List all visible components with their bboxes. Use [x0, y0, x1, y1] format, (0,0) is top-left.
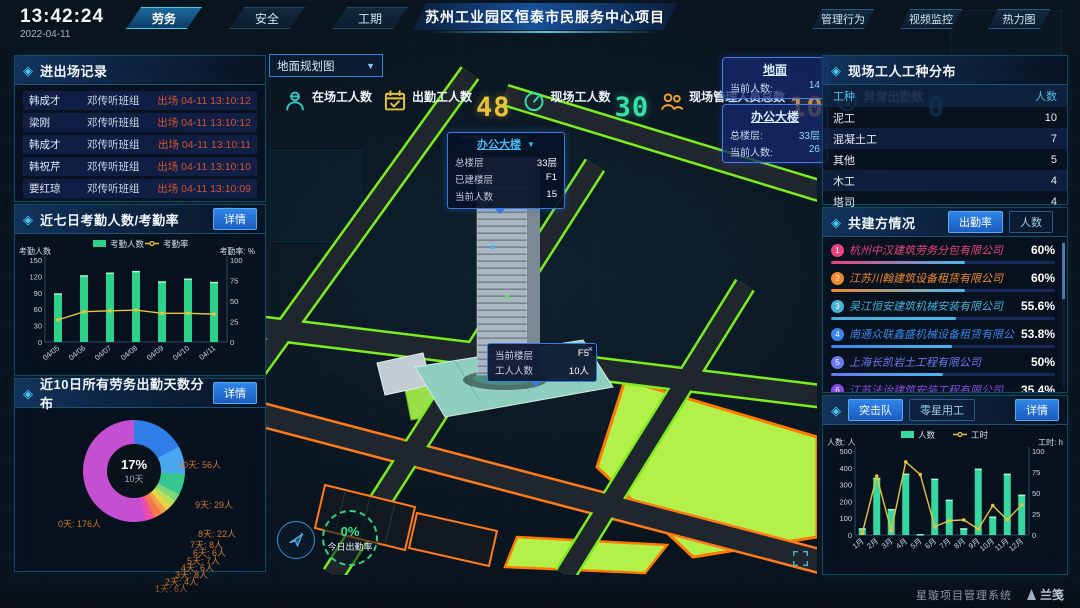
progress-track	[831, 261, 1055, 264]
info-row: 总楼层:33层	[730, 127, 820, 142]
partner-line: 6江苏法诒建筑安装工程有限公司35.4%	[831, 382, 1055, 392]
top-tab[interactable]: 热力图	[988, 9, 1050, 29]
top-tabs-left: 劳务安全工期	[126, 7, 408, 29]
tab-突击队[interactable]: 突击队	[848, 399, 903, 421]
svg-text:30: 30	[34, 322, 42, 331]
info-value: 15	[546, 189, 557, 203]
rank-badge: 2	[831, 272, 844, 285]
map-layer-value: 地面规划图	[277, 58, 335, 74]
svg-text:0: 0	[230, 338, 234, 347]
brand-name: 兰笺	[1040, 586, 1064, 603]
partner-value: 35.4%	[1021, 383, 1055, 392]
info-value: 14	[809, 80, 820, 95]
progress-fill	[831, 317, 956, 320]
trade-count: 4	[1011, 196, 1057, 208]
svg-text:7月: 7月	[938, 536, 953, 550]
partner-value: 60%	[1031, 271, 1055, 285]
progress-track	[831, 317, 1055, 320]
partner-value: 50%	[1031, 355, 1055, 369]
svg-text:6月: 6月	[923, 536, 938, 550]
stat-worker: 在场工人数	[282, 80, 372, 114]
info-row: 总楼层33层	[455, 155, 557, 169]
chevron-down-icon[interactable]: ▼	[527, 140, 535, 149]
worker-name: 梁刚	[29, 115, 87, 130]
stat-value: 30	[615, 94, 650, 121]
partner-item[interactable]: 2江苏川翰建筑设备租赁有限公司60%	[831, 270, 1055, 292]
attendance-chart-title: 近七日考勤人数/考勤率	[40, 210, 206, 229]
detail-button[interactable]: 详情	[213, 208, 257, 230]
floor-tooltip[interactable]: × 当前楼层F5工人人数10人	[487, 343, 597, 382]
svg-text:04/06: 04/06	[67, 343, 87, 362]
svg-text:75: 75	[1032, 468, 1040, 477]
detail-button[interactable]: 详情	[1015, 399, 1059, 421]
svg-text:120: 120	[29, 272, 42, 281]
squad-chart: 人数工时人数: 人工时: h01002003004005000255075100…	[823, 425, 1067, 571]
time-display: 13:42:24	[20, 6, 104, 28]
crew-name: 邓传听班组	[87, 93, 157, 108]
scrollbar-thumb[interactable]	[1062, 243, 1065, 299]
title-underline	[430, 31, 660, 33]
partner-line: 5上海长凯岩土工程有限公司50%	[831, 354, 1055, 370]
info-label: 总楼层:	[730, 127, 763, 142]
svg-text:考勤人数: 考勤人数	[19, 246, 51, 256]
chevron-down-icon: ▼	[366, 61, 375, 71]
crew-name: 邓传听班组	[87, 137, 158, 152]
title-banner: 苏州工业园区恒泰市民服务中心项目	[413, 3, 677, 30]
partner-name: 杭州中汉建筑劳务分包有限公司	[849, 242, 1026, 258]
top-tabs-right: 管理行为视频监控热力图	[812, 9, 1050, 29]
svg-text:1月: 1月	[851, 536, 866, 550]
worker-name: 韩成才	[29, 93, 87, 108]
donut-center: 17% 10天	[107, 444, 161, 498]
worker-name: 韩成才	[29, 137, 87, 152]
partner-line: 4南通众联鑫盛机械设备租赁有限公司53.8%	[831, 326, 1055, 342]
info-value: 10人	[569, 363, 589, 377]
attendance-chart-panel: ◈ 近七日考勤人数/考勤率 详情 考勤人数考勤率考勤人数考勤率: %030609…	[14, 204, 266, 376]
svg-text:04/09: 04/09	[145, 343, 165, 362]
table-row[interactable]: 韩成才邓传听班组出场 04-11 13:10:11	[23, 135, 257, 154]
svg-text:工时: 工时	[971, 430, 989, 440]
top-tab[interactable]: 劳务	[126, 7, 202, 29]
calendar-check-icon	[382, 88, 408, 114]
svg-text:500: 500	[839, 447, 852, 456]
top-tab[interactable]: 安全	[229, 7, 305, 29]
partners-list: 1杭州中汉建筑劳务分包有限公司60%2江苏川翰建筑设备租赁有限公司60%3吴江恒…	[823, 237, 1067, 392]
tab-零星用工[interactable]: 零星用工	[909, 399, 975, 421]
people-icon	[659, 88, 685, 114]
exit-time: 出场 04-11 13:10:11	[158, 137, 251, 152]
ground-box-rows: 当前人数:14	[730, 80, 820, 95]
donut-center-percent: 17%	[121, 457, 147, 472]
distribution-title: 近10日所有劳务出勤天数分布	[40, 374, 206, 412]
table-row[interactable]: 韩祝芹邓传听班组出场 04-11 13:10:10	[23, 157, 257, 176]
svg-text:25: 25	[230, 318, 238, 327]
tab-人数[interactable]: 人数	[1009, 211, 1053, 233]
partner-value: 53.8%	[1021, 327, 1055, 341]
svg-text:04/05: 04/05	[41, 343, 61, 362]
exit-time: 出场 04-11 13:10:10	[157, 159, 251, 174]
svg-text:04/08: 04/08	[119, 343, 139, 362]
donut-center-label: 10天	[124, 472, 143, 485]
svg-text:75: 75	[230, 277, 238, 286]
svg-text:25: 25	[1032, 510, 1040, 519]
table-row[interactable]: 其他5	[823, 149, 1067, 170]
partner-item[interactable]: 6江苏法诒建筑安装工程有限公司35.4%	[831, 382, 1055, 392]
stat-calendar-check: 出勤工人数48	[382, 80, 511, 121]
top-tab[interactable]: 工期	[332, 7, 408, 29]
system-name: 星璇项目管理系统	[916, 587, 1012, 603]
partner-line: 1杭州中汉建筑劳务分包有限公司60%	[831, 242, 1055, 258]
partners-title: 共建方情况	[848, 213, 941, 232]
diamond-icon: ◈	[23, 387, 33, 400]
svg-text:工时: h: 工时: h	[1038, 437, 1063, 447]
svg-text:04/07: 04/07	[93, 343, 113, 362]
svg-text:3月: 3月	[880, 536, 895, 550]
progress-track	[831, 373, 1055, 376]
diamond-icon: ◈	[23, 213, 33, 226]
scrollbar[interactable]	[1062, 241, 1065, 388]
brand-logo: 兰笺	[1026, 586, 1064, 603]
partner-name: 江苏法诒建筑安装工程有限公司	[849, 382, 1016, 392]
progress-fill	[831, 373, 943, 376]
partner-line: 3吴江恒安建筑机械安装有限公司55.6%	[831, 298, 1055, 314]
attendance-chart: 考勤人数考勤率考勤人数考勤率: %03060901201500255075100…	[15, 234, 259, 372]
info-value: 26	[809, 144, 820, 159]
diamond-icon: ◈	[831, 64, 841, 77]
stat-gauge: 现场工人数30	[521, 80, 650, 121]
rank-badge: 6	[831, 384, 844, 393]
crew-name: 邓传听班组	[87, 181, 157, 196]
ground-info-box[interactable]: 地面 当前人数:14	[722, 57, 828, 99]
svg-text:4月: 4月	[894, 536, 909, 550]
svg-text:5月: 5月	[909, 536, 924, 550]
distribution-panel: ◈ 近10日所有劳务出勤天数分布 详情 17% 10天 10天: 56人9天: …	[14, 378, 266, 572]
svg-text:人数: 人: 人数: 人	[827, 437, 855, 447]
table-row[interactable]: 泥工10	[823, 107, 1067, 128]
office-box-title: 办公大楼	[730, 108, 820, 125]
svg-text:100: 100	[230, 256, 243, 265]
trade-name: 泥工	[833, 110, 1011, 126]
trade-name: 木工	[833, 173, 1011, 189]
info-label: 当前楼层	[495, 348, 533, 362]
entry-exit-title: 进出场记录	[40, 61, 257, 80]
info-label: 当前人数	[455, 189, 493, 203]
svg-text:人数: 人数	[918, 430, 936, 440]
exit-time: 出场 04-11 13:10:12	[157, 93, 251, 108]
rank-badge: 3	[831, 300, 844, 313]
fullscreen-icon	[792, 550, 809, 567]
brand-icon	[1026, 589, 1037, 601]
entry-exit-panel: ◈ 进出场记录 韩成才邓传听班组出场 04-11 13:10:12梁刚邓传听班组…	[14, 55, 266, 202]
squad-chart-panel: ◈ 突击队零星用工 详情 人数工时人数: 人工时: h0100200300400…	[822, 395, 1068, 575]
svg-text:50: 50	[1032, 489, 1040, 498]
progress-track	[831, 289, 1055, 292]
attendance-days-donut: 17% 10天 10天: 56人9天: 29人8天: 22人7天: 8人6天: …	[15, 408, 265, 570]
info-label: 当前人数:	[730, 144, 773, 159]
office-box-rows: 总楼层:33层当前人数:26	[730, 127, 820, 159]
info-value: F1	[546, 172, 557, 186]
date-display: 2022-04-11	[20, 29, 104, 40]
svg-text:50: 50	[230, 297, 238, 306]
detail-button[interactable]: 详情	[213, 382, 257, 404]
info-row: 当前楼层F5	[495, 348, 589, 362]
map-layer-select[interactable]: 地面规划图 ▼	[269, 54, 383, 77]
floor-tooltip-rows: 当前楼层F5工人人数10人	[495, 348, 589, 377]
svg-text:100: 100	[1032, 447, 1045, 456]
top-bar: 13:42:24 2022-04-11 劳务安全工期 苏州工业园区恒泰市民服务中…	[0, 0, 1080, 46]
crew-name: 邓传听班组	[87, 115, 157, 130]
svg-text:300: 300	[839, 481, 852, 490]
partner-name: 江苏川翰建筑设备租赁有限公司	[849, 270, 1026, 286]
stat-label: 现场工人数	[551, 88, 611, 105]
table-row[interactable]: 要红琼邓传听班组出场 04-11 13:10:09	[23, 179, 257, 198]
partner-item[interactable]: 1杭州中汉建筑劳务分包有限公司60%	[831, 242, 1055, 264]
partner-name: 吴江恒安建筑机械安装有限公司	[849, 298, 1016, 314]
trade-name: 其他	[833, 152, 1011, 168]
partners-tabs: 出勤率人数	[948, 211, 1053, 233]
svg-text:0: 0	[38, 338, 42, 347]
table-row[interactable]: 梁刚邓传听班组出场 04-11 13:10:12	[23, 113, 257, 132]
trade-name: 混凝土工	[833, 131, 1011, 147]
partner-value: 60%	[1031, 243, 1055, 257]
partner-item[interactable]: 5上海长凯岩土工程有限公司50%	[831, 354, 1055, 376]
svg-text:100: 100	[839, 514, 852, 523]
donut-slice-label: 10天: 56人	[178, 458, 221, 471]
page-title: 苏州工业园区恒泰市民服务中心项目	[425, 7, 665, 27]
svg-text:60: 60	[34, 305, 42, 314]
crew-name: 邓传听班组	[87, 159, 157, 174]
info-label: 总楼层	[455, 155, 484, 169]
svg-text:90: 90	[34, 289, 42, 298]
svg-text:150: 150	[29, 256, 42, 265]
info-label: 已建楼层	[455, 172, 493, 186]
info-row: 当前人数15	[455, 189, 557, 203]
building-tooltip-title[interactable]: 办公大楼	[477, 136, 521, 152]
worker-name: 要红琼	[29, 181, 87, 196]
building-tooltip[interactable]: 办公大楼 ▼ 总楼层33层已建楼层F1当前人数15	[447, 132, 565, 209]
table-header: 工种人数	[823, 85, 1067, 107]
svg-text:04/11: 04/11	[197, 343, 217, 361]
info-row: 工人人数10人	[495, 363, 589, 377]
gauge-value: 0%	[341, 524, 360, 539]
today-attendance-gauge: 0% 今日出勤率	[322, 510, 378, 566]
info-row: 当前人数:26	[730, 144, 820, 159]
column-header: 人数	[1011, 88, 1057, 104]
gauge-label: 今日出勤率	[327, 540, 372, 553]
progress-fill	[831, 345, 952, 348]
squad-tabs: 突击队零星用工	[848, 399, 1002, 421]
exit-time: 出场 04-11 13:10:09	[157, 181, 251, 196]
partners-panel: ◈ 共建方情况 出勤率人数 1杭州中汉建筑劳务分包有限公司60%2江苏川翰建筑设…	[822, 207, 1068, 393]
trade-table-title: 现场工人工种分布	[848, 61, 1059, 80]
stat-value: 48	[476, 94, 511, 121]
worker-icon	[282, 88, 308, 114]
trade-count: 7	[1011, 133, 1057, 145]
svg-text:8月: 8月	[952, 536, 967, 550]
diamond-icon: ◈	[831, 216, 841, 229]
gauge-icon	[521, 88, 547, 114]
partner-item[interactable]: 4南通众联鑫盛机械设备租赁有限公司53.8%	[831, 326, 1055, 348]
info-value: 33层	[537, 155, 557, 169]
table-row[interactable]: 混凝土工7	[823, 128, 1067, 149]
partner-value: 55.6%	[1021, 299, 1055, 313]
rank-badge: 1	[831, 244, 844, 257]
svg-text:12月: 12月	[1007, 536, 1025, 553]
svg-text:考勤率: %: 考勤率: %	[219, 246, 255, 256]
rank-badge: 4	[831, 328, 844, 341]
entry-exit-list: 韩成才邓传听班组出场 04-11 13:10:12梁刚邓传听班组出场 04-11…	[15, 85, 265, 203]
trade-count: 5	[1011, 154, 1057, 166]
navigation-arrow-icon	[286, 530, 306, 550]
info-label: 工人人数	[495, 363, 533, 377]
table-row[interactable]: 木工4	[823, 170, 1067, 191]
svg-text:考勤人数: 考勤人数	[110, 239, 145, 249]
svg-text:400: 400	[839, 464, 852, 473]
donut-slice-label: 9天: 29人	[195, 498, 233, 511]
office-info-box[interactable]: 办公大楼 总楼层:33层当前人数:26	[722, 104, 828, 163]
svg-text:04/10: 04/10	[171, 343, 191, 362]
info-row: 已建楼层F1	[455, 172, 557, 186]
exit-time: 出场 04-11 13:10:12	[157, 115, 251, 130]
stat-label: 在场工人数	[312, 88, 372, 105]
trade-count: 10	[1011, 112, 1057, 124]
trade-distribution-panel: ◈ 现场工人工种分布 工种人数泥工10混凝土工7其他5木工4塔司4	[822, 55, 1068, 205]
partner-name: 南通众联鑫盛机械设备租赁有限公司	[849, 326, 1016, 342]
clock: 13:42:24 2022-04-11	[20, 6, 104, 40]
diamond-icon: ◈	[831, 404, 841, 417]
svg-text:0: 0	[1032, 531, 1036, 540]
svg-text:0: 0	[848, 531, 852, 540]
partner-item[interactable]: 3吴江恒安建筑机械安装有限公司55.6%	[831, 298, 1055, 320]
progress-track	[831, 345, 1055, 348]
building-tooltip-rows: 总楼层33层已建楼层F1当前人数15	[455, 155, 557, 203]
table-row[interactable]: 韩成才邓传听班组出场 04-11 13:10:12	[23, 91, 257, 110]
compass-control[interactable]	[277, 521, 315, 559]
trade-count: 4	[1011, 175, 1057, 187]
rank-badge: 5	[831, 356, 844, 369]
info-value: 33层	[799, 127, 820, 142]
partner-line: 2江苏川翰建筑设备租赁有限公司60%	[831, 270, 1055, 286]
stat-label: 出勤工人数	[412, 88, 472, 105]
info-label: 当前人数:	[730, 80, 773, 95]
diamond-icon: ◈	[23, 64, 33, 77]
top-tab[interactable]: 视频监控	[900, 9, 962, 29]
partner-name: 上海长凯岩土工程有限公司	[849, 354, 1026, 370]
top-tab[interactable]: 管理行为	[812, 9, 874, 29]
worker-name: 韩祝芹	[29, 159, 87, 174]
progress-fill	[831, 261, 965, 264]
svg-text:200: 200	[839, 497, 852, 506]
svg-text:2月: 2月	[865, 536, 880, 550]
donut-slice-label: 0天: 176人	[31, 517, 101, 530]
ground-box-title: 地面	[730, 61, 820, 78]
info-row: 当前人数:14	[730, 80, 820, 95]
tab-出勤率[interactable]: 出勤率	[948, 211, 1003, 233]
fullscreen-button[interactable]	[792, 550, 809, 567]
svg-text:考勤率: 考勤率	[163, 239, 189, 249]
column-header: 工种	[833, 88, 1011, 104]
close-icon[interactable]: ×	[588, 344, 593, 354]
footer: 星璇项目管理系统 兰笺	[916, 586, 1064, 603]
progress-fill	[831, 289, 965, 292]
trade-table: 工种人数泥工10混凝土工7其他5木工4塔司4	[823, 85, 1067, 212]
